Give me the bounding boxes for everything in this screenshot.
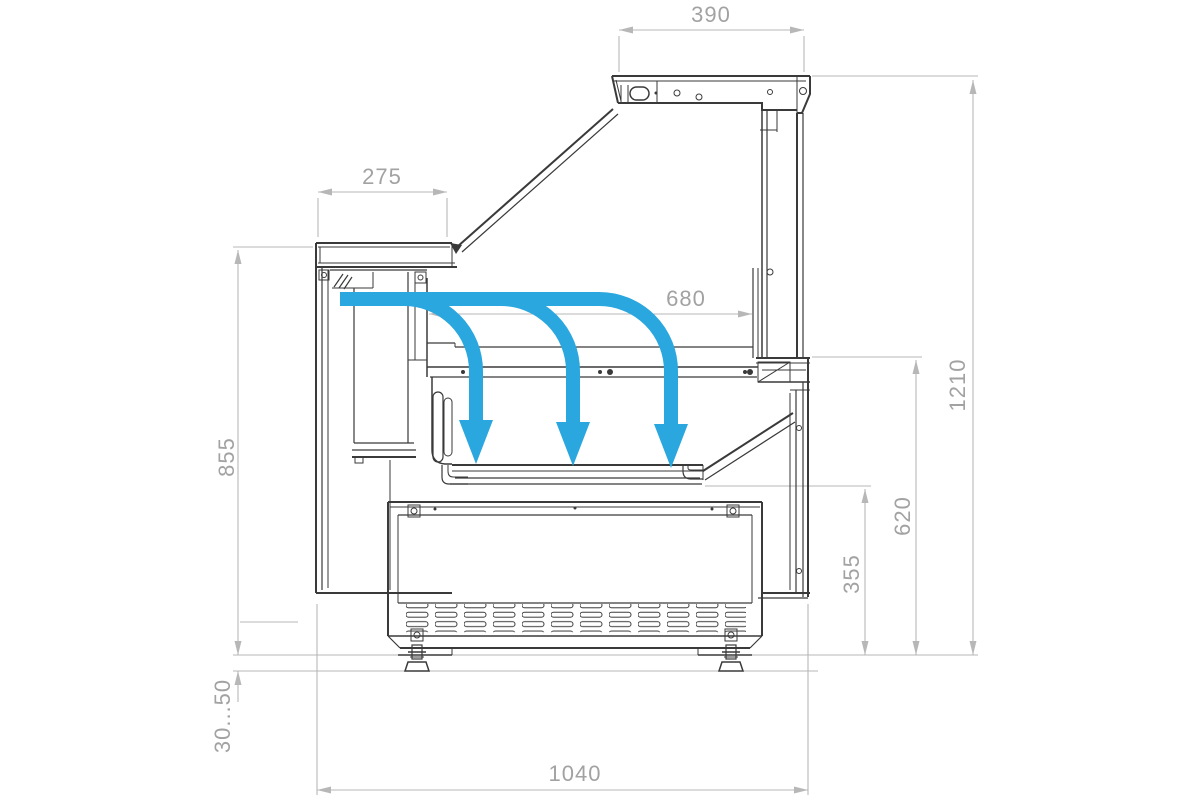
dimension-annotations: 390 275 680 855 30...50 <box>210 2 978 795</box>
dim-adjustable-feet: 30...50 <box>210 671 238 753</box>
dim-overall-depth: 1040 <box>317 604 808 795</box>
airflow-arrow-3 <box>340 299 671 425</box>
dim-label-355: 355 <box>839 554 864 594</box>
dim-label-855: 855 <box>214 437 239 477</box>
glass-screw <box>767 269 773 275</box>
insulation-hatch <box>334 274 352 289</box>
front-glass <box>753 110 803 358</box>
dim-label-620: 620 <box>890 496 915 536</box>
lamp-icon <box>630 87 649 100</box>
dim-canopy-width: 390 <box>619 2 804 72</box>
dim-label-390: 390 <box>691 2 731 27</box>
dim-overall-height: 1210 <box>812 76 978 655</box>
diagram-canvas: 390 275 680 855 30...50 <box>0 0 1200 800</box>
dim-label-275: 275 <box>362 164 402 189</box>
ventilation-grille <box>406 604 746 632</box>
dim-front-glass-level: 620 <box>812 357 922 655</box>
dim-label-1210: 1210 <box>945 359 970 412</box>
airflow-arrowhead-1 <box>459 420 493 464</box>
front-panel <box>756 358 810 598</box>
sloped-glass <box>450 109 618 254</box>
canopy-end-hole <box>800 88 807 95</box>
rear-worktop <box>316 243 457 267</box>
base-plinth <box>388 502 762 655</box>
technical-drawing: 390 275 680 855 30...50 <box>0 0 1200 800</box>
canopy <box>612 76 810 113</box>
dim-label-680: 680 <box>666 286 706 311</box>
airflow-arrowhead-3 <box>654 424 688 468</box>
storage-niche <box>332 272 426 590</box>
evaporator-pipe <box>433 392 443 462</box>
dim-label-30-50: 30...50 <box>210 679 235 753</box>
dim-label-1040: 1040 <box>549 761 602 786</box>
dim-rear-height: 855 <box>214 247 313 655</box>
airflow-arrowhead-2 <box>556 422 590 466</box>
evaporator-pipe <box>444 398 452 456</box>
dim-worktop-depth: 275 <box>318 164 447 237</box>
